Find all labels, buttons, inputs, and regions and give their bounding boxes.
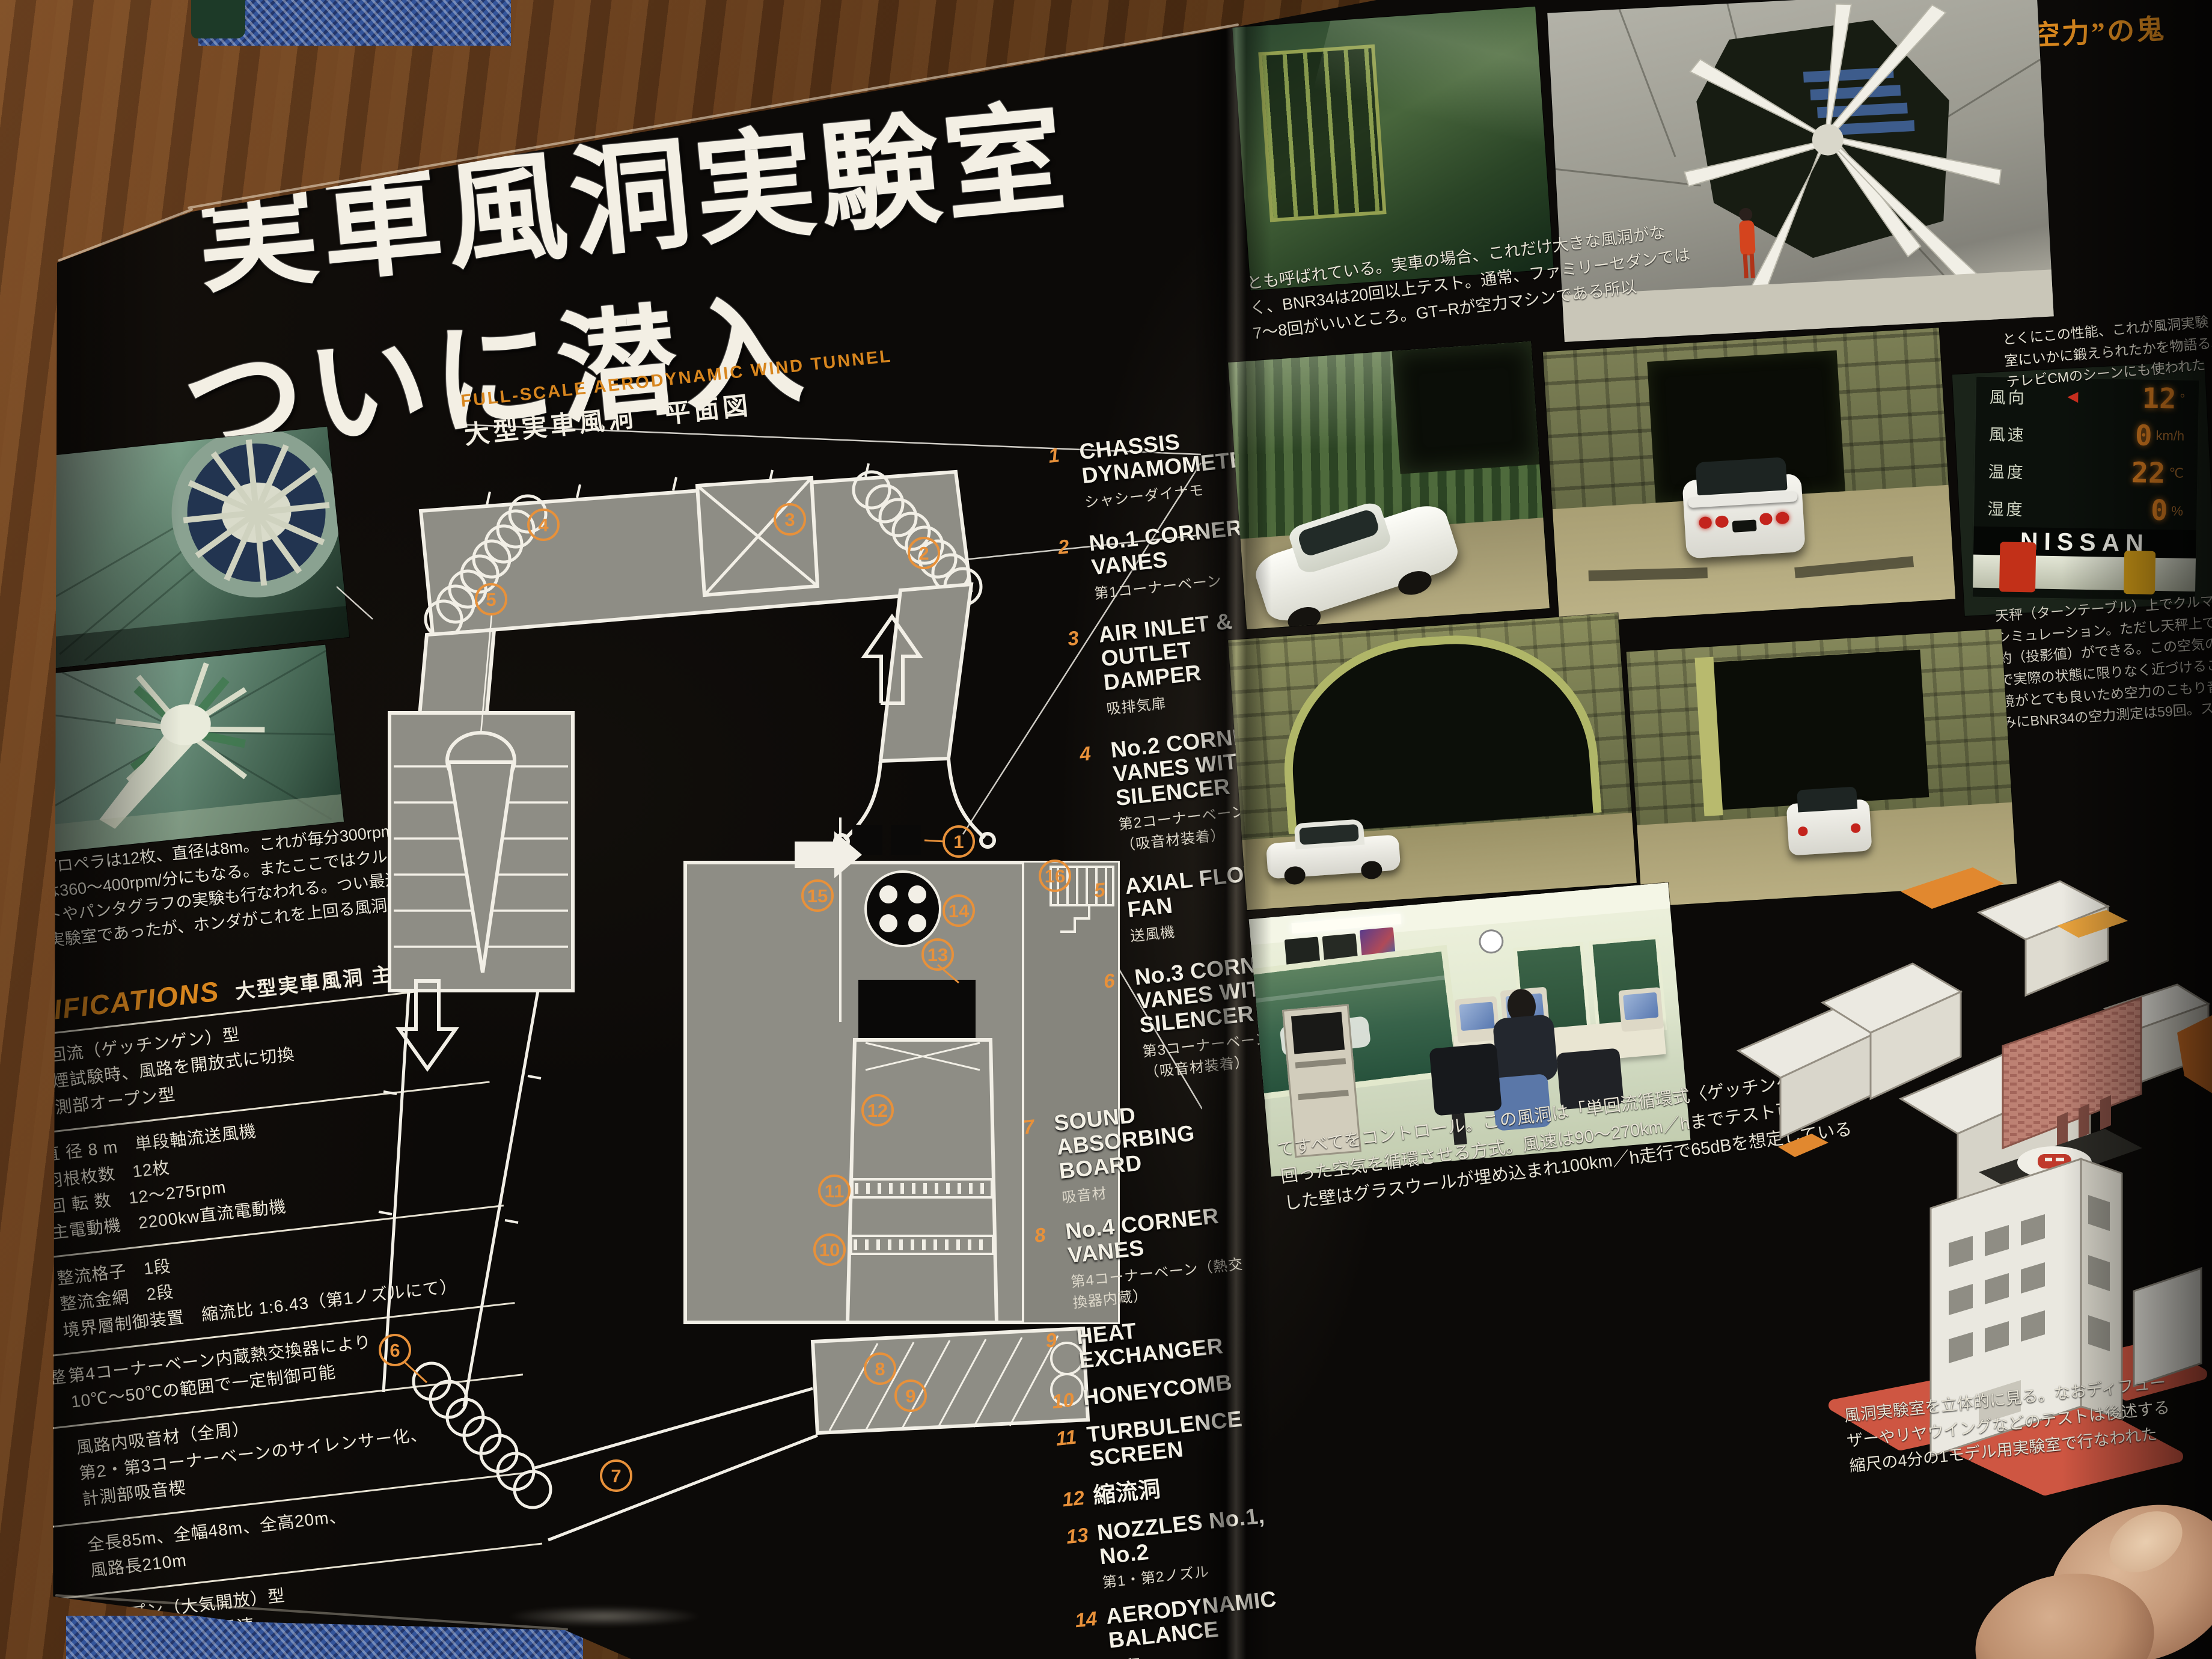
chamber-opening [1392, 341, 1539, 474]
page-title-line1: 実車風洞実験室 [191, 91, 1075, 310]
fabric-top [198, 0, 511, 46]
fabric-top-green [191, 0, 245, 38]
svg-text:4: 4 [538, 515, 549, 536]
chassis-dyno-pad [852, 825, 882, 855]
wall-clock [1478, 928, 1505, 955]
svg-text:3: 3 [784, 509, 795, 530]
corner-vanes-no3 [414, 1363, 551, 1508]
svg-text:9: 9 [905, 1386, 915, 1407]
svg-text:12: 12 [867, 1100, 888, 1121]
turntable-balance [866, 872, 940, 946]
magazine-spread: 禁断の聖域 実車風洞実験室 ついに潜入 FULL-SCALE AERODYNAM… [0, 0, 2212, 1659]
nozzle-no2-intake [858, 980, 976, 1040]
svg-text:16: 16 [1045, 866, 1065, 887]
magazine-photo: 禁断の聖域 実車風洞実験室 ついに潜入 FULL-SCALE AERODYNAM… [0, 0, 2212, 1659]
bottom-duct [535, 1389, 817, 1540]
axial-flow-fan [390, 713, 573, 991]
red-lamp [2000, 542, 2036, 592]
svg-text:10: 10 [819, 1239, 840, 1260]
gtr-rear [1681, 456, 1806, 561]
svg-text:13: 13 [927, 944, 948, 965]
svg-text:8: 8 [875, 1358, 885, 1379]
air-inlet-damper [697, 478, 817, 595]
page-gutter [1193, 12, 1271, 1659]
svg-text:1: 1 [953, 831, 964, 852]
svg-text:6: 6 [390, 1340, 400, 1361]
svg-text:5: 5 [486, 589, 496, 610]
chassis-dyno-pad [891, 825, 921, 855]
svg-text:14: 14 [949, 900, 970, 921]
svg-text:7: 7 [611, 1465, 621, 1486]
arch-opening [1276, 626, 1601, 834]
page-curl-highlight [505, 1606, 703, 1627]
office-chair [1429, 1043, 1502, 1116]
svg-text:2: 2 [918, 543, 929, 564]
thumb [1957, 1503, 2212, 1659]
observation-window [1249, 945, 1463, 1100]
settling-duct [848, 1040, 997, 1322]
photo-gtr-rear-chamber [1543, 328, 1955, 623]
svg-text:15: 15 [807, 885, 828, 906]
photo-car-front-turntable [1228, 341, 1550, 629]
crt-monitor [1618, 987, 1664, 1032]
svg-text:11: 11 [825, 1181, 845, 1202]
white-car-side [1264, 813, 1401, 881]
photo-chamber-arch [1228, 613, 1637, 910]
chamber-opening [1709, 649, 1928, 810]
